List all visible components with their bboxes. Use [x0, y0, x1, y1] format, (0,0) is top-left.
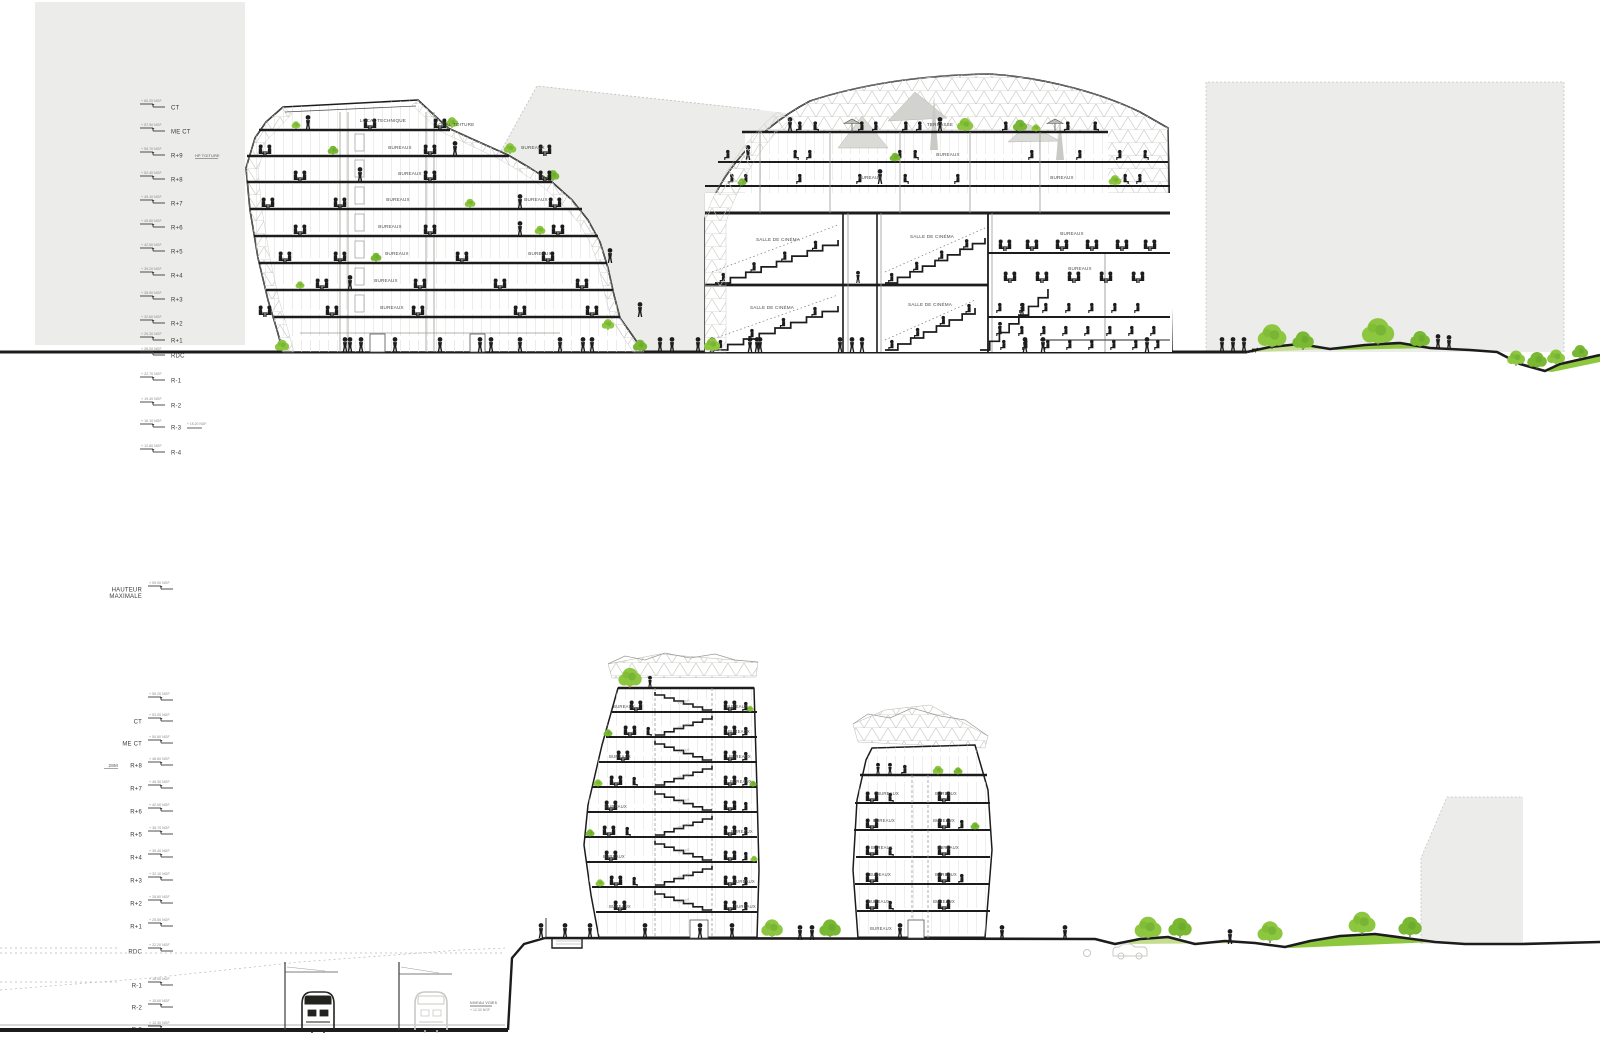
circle [278, 342, 282, 346]
circle [783, 251, 787, 255]
circle [1090, 340, 1094, 344]
circle [1063, 925, 1068, 930]
circle [750, 329, 754, 333]
circle [874, 121, 878, 125]
tower-1: PALIERPALIERPALIERPALIERPALIERPALIERPALI… [584, 653, 759, 938]
circle [262, 198, 266, 202]
path [160, 900, 163, 902]
level-marker: + 35.40 NGFR+4 [130, 849, 173, 861]
window [355, 295, 364, 312]
circle [502, 279, 506, 283]
label-text: + 16.10 NGF [141, 419, 162, 423]
room-label: BUREAUX [528, 251, 552, 256]
circle [334, 306, 338, 310]
circle [539, 171, 543, 175]
tree-icon [1398, 917, 1421, 937]
level-label: R+8 [171, 177, 183, 183]
room-label: BUREAUX [380, 305, 404, 310]
circle [518, 337, 523, 342]
train-icon [302, 992, 334, 1033]
level-label: R+3 [171, 297, 183, 303]
path [160, 762, 163, 764]
path [552, 938, 582, 948]
circle [1034, 240, 1038, 244]
circle [624, 726, 628, 730]
circle [1030, 150, 1034, 154]
circle [960, 874, 964, 878]
label-text: + 28.80 NGF [149, 895, 170, 899]
circle [813, 121, 817, 125]
circle [267, 306, 271, 310]
room-label: BUREAUX [728, 729, 750, 734]
circle [522, 306, 526, 310]
circle [755, 337, 760, 342]
circle [636, 342, 640, 346]
circle [358, 167, 363, 172]
circle [698, 923, 703, 928]
person-figure [563, 923, 568, 938]
level-marker: + 16.10 NGFR-3+ 15.20 NGF [140, 419, 207, 431]
path [152, 402, 155, 404]
room-label: LOCAL TECHNIQUE [360, 118, 406, 123]
circle [876, 763, 880, 767]
circle [730, 923, 735, 928]
room-label: BUREAUX [1060, 231, 1084, 236]
circle [955, 769, 958, 772]
circle [1112, 340, 1116, 344]
label-text: + 18.90 NGF [149, 977, 170, 981]
circle [658, 337, 663, 342]
circle [860, 121, 864, 125]
top-section: LOCAL TECHNIQUELOCAL TOITUREBUREAUXBUREA… [0, 2, 1600, 456]
circle [724, 826, 728, 830]
circle [294, 171, 298, 175]
level-marker: + 22.20 NGFRDC [0, 943, 173, 955]
circle [297, 283, 300, 286]
circle [1145, 337, 1150, 342]
circle [605, 731, 608, 734]
circle [967, 304, 971, 308]
circle [1116, 240, 1120, 244]
circle [1173, 922, 1180, 929]
label-text: + 19.40 NGF [141, 397, 162, 401]
circle [467, 200, 470, 203]
label-text: + 45.80 NGF [141, 219, 162, 223]
path [152, 424, 155, 426]
circle [334, 198, 338, 202]
circle [632, 877, 636, 881]
circle [464, 252, 468, 256]
label-text: + 57.90 NGF [141, 123, 162, 127]
circle [915, 262, 919, 266]
circle [823, 923, 829, 929]
circle [424, 171, 428, 175]
circle [918, 121, 922, 125]
path [160, 1004, 163, 1006]
circle [724, 901, 728, 905]
person-figure [588, 923, 593, 938]
line [287, 967, 325, 971]
circle [707, 341, 712, 346]
circle [1403, 921, 1410, 928]
circle [348, 337, 353, 342]
circle [306, 115, 311, 120]
circle [316, 279, 320, 283]
label-text: + 59.00 NGF [149, 581, 170, 585]
circle [588, 923, 593, 928]
circle [393, 337, 398, 342]
room-label: BUREAUX [873, 818, 895, 823]
circle [560, 225, 564, 229]
circle [557, 198, 561, 202]
window [355, 268, 364, 285]
circle [563, 923, 568, 928]
circle [1067, 303, 1071, 307]
circle [904, 121, 908, 125]
room-label: BUREAUX [935, 791, 957, 796]
circle [1064, 240, 1068, 244]
circle [1156, 340, 1160, 344]
level-label: R+8 [130, 763, 142, 769]
circle [456, 252, 460, 256]
level-label: R+1 [130, 924, 142, 930]
circle [1020, 326, 1024, 330]
circle [576, 279, 580, 283]
circle [1263, 329, 1271, 337]
circle [1094, 240, 1098, 244]
circle [618, 876, 622, 880]
circle [412, 306, 416, 310]
path [160, 1026, 163, 1028]
level-label: ME CT [122, 741, 142, 747]
label-text: + 38.70 NGF [149, 826, 170, 830]
level-label: R+6 [130, 809, 142, 815]
label-text: + 45.30 NGF [149, 780, 170, 784]
circle [724, 851, 728, 855]
room-label: BUREAUX [1050, 175, 1074, 180]
background-block [1421, 797, 1523, 944]
label-text: + 53.00 NGF [149, 713, 170, 717]
circle [860, 337, 865, 342]
level-label: R+5 [171, 249, 183, 255]
circle [584, 279, 588, 283]
label-text: + 55.20 NGF [149, 692, 170, 696]
circle [539, 923, 544, 928]
circle [632, 726, 636, 730]
level-label: R+4 [171, 273, 183, 279]
label-text: + 32.60 NGF [141, 315, 162, 319]
tree-icon [1168, 918, 1191, 938]
circle [726, 150, 730, 154]
circle [1123, 174, 1127, 178]
label-text: + 15.60 NGF [149, 999, 170, 1003]
label-text: + 25.50 NGF [149, 918, 170, 922]
circle [744, 852, 748, 856]
level-marker: + 48.60 NGFR+828M [104, 757, 173, 769]
level-marker: + 32.10 NGFR+3 [130, 872, 173, 884]
circle [618, 776, 622, 780]
circle [1000, 925, 1005, 930]
circle [813, 307, 817, 311]
circle [610, 776, 614, 780]
circle [1086, 240, 1090, 244]
circle [489, 337, 494, 342]
path [160, 831, 163, 833]
level-label: R+3 [130, 878, 142, 884]
circle [424, 225, 428, 229]
circle [798, 174, 802, 178]
shape [308, 1010, 316, 1016]
circle [302, 171, 306, 175]
circle [552, 225, 556, 229]
mesh-cap [853, 705, 988, 748]
circle [850, 337, 855, 342]
label-text: + 22.20 NGF [149, 943, 170, 947]
circle [782, 318, 786, 322]
label-text: + 29.30 NGF [141, 332, 162, 336]
circle [916, 328, 920, 332]
label-text: + 26.00 NGF [141, 347, 162, 351]
circle [724, 876, 728, 880]
door [370, 334, 385, 352]
shape [421, 1010, 429, 1016]
room-label: SALLE DE CINÉMA [756, 236, 801, 242]
circle [965, 239, 969, 243]
tree-icon [819, 919, 840, 938]
circle [748, 707, 750, 709]
circle [1016, 122, 1020, 126]
circle [724, 751, 728, 755]
label-text: + 32.10 NGF [149, 872, 170, 876]
label-text: NIVEAU VOIES [470, 1001, 498, 1005]
label-text: + 42.50 NGF [141, 243, 162, 247]
circle [999, 240, 1003, 244]
circle [1414, 334, 1420, 340]
circle [890, 273, 894, 277]
path [160, 808, 163, 810]
person-figure [648, 676, 652, 688]
circle [1111, 177, 1115, 181]
path [563, 928, 568, 938]
circle [270, 198, 274, 202]
circle [956, 174, 960, 178]
shape [433, 1010, 441, 1016]
level-label: R+7 [171, 201, 183, 207]
room-label: BUREAUX [605, 804, 627, 809]
level-label: R-2 [132, 1005, 143, 1011]
room-label: BUREAUX [730, 779, 752, 784]
circle [1044, 272, 1048, 276]
room-label: BUREAUX [869, 872, 891, 877]
circle [732, 801, 736, 805]
rail-cutting: NIVEAU VOIES+ 12.30 NGF [0, 918, 592, 1033]
circle [478, 337, 483, 342]
circle [506, 145, 510, 149]
circle [1068, 272, 1072, 276]
circle [432, 145, 436, 149]
circle [942, 316, 946, 320]
shape [320, 1010, 328, 1016]
circle [1550, 352, 1555, 357]
circle [587, 831, 590, 834]
level-label: R+7 [130, 786, 142, 792]
circle [960, 121, 965, 126]
circle [1220, 337, 1225, 342]
circle [1046, 340, 1050, 344]
circle [594, 306, 598, 310]
door [470, 334, 485, 352]
level-marker: + 50.80 NGFME CT [122, 735, 173, 747]
level-marker: + 53.00 NGFCT [134, 713, 173, 725]
circle [547, 171, 551, 175]
level-marker: + 38.70 NGFR+5 [130, 826, 173, 838]
desk-group [259, 306, 272, 318]
path [160, 718, 163, 720]
circle [1056, 240, 1060, 244]
circle [610, 876, 614, 880]
room-label: BUREAUX [936, 152, 960, 157]
circle [890, 340, 894, 344]
circle [866, 792, 870, 796]
level-label: CT [171, 105, 180, 111]
circle [1023, 337, 1028, 342]
room-label: BUREAUX [731, 829, 753, 834]
path [160, 923, 163, 925]
label-text: + 52.40 NGF [141, 171, 162, 175]
circle [432, 225, 436, 229]
circle [632, 777, 636, 781]
circle [424, 145, 428, 149]
circle [1354, 916, 1362, 924]
tree-icon [1527, 352, 1547, 369]
tower-2: BUREAUXBUREAUXBUREAUXBUREAUXBUREAUXBUREA… [853, 705, 992, 938]
level-markers: + 59.00 NGFHAUTEURMAXIMALE+ 55.20 NGF+ 5… [0, 581, 173, 1033]
room-label: SALLE DE CINÉMA [750, 304, 795, 310]
background-block [35, 2, 245, 345]
room-label: BUREAUX [378, 224, 402, 229]
circle [595, 781, 598, 784]
circle [494, 279, 498, 283]
circle [748, 337, 753, 342]
circle [898, 923, 903, 928]
circle [324, 279, 328, 283]
circle [326, 306, 330, 310]
room-label: BUREAUX [733, 879, 755, 884]
circle [1130, 326, 1134, 330]
drawing-canvas: LOCAL TECHNIQUELOCAL TOITUREBUREAUXBUREA… [0, 0, 1600, 1043]
room-label: SALLE DE CINÉMA [910, 233, 955, 239]
label-text: + 12.30 NGF [470, 1008, 490, 1012]
circle [1068, 340, 1072, 344]
level-label: R-3 [171, 425, 182, 431]
level-note: 28M [108, 763, 118, 768]
label-text: + 49.10 NGF [141, 195, 162, 199]
path [160, 785, 163, 787]
circle [638, 302, 643, 307]
circle [903, 765, 907, 769]
path [539, 928, 544, 938]
room-label: BUREAUX [609, 904, 631, 909]
room-label: SALLE DE CINÉMA [908, 301, 953, 307]
level-marker: + 42.00 NGFR+6 [130, 803, 173, 815]
circle [913, 150, 917, 154]
circle [1152, 326, 1156, 330]
circle [1296, 335, 1302, 341]
circle [1152, 240, 1156, 244]
room-label: BUREAUX [871, 845, 893, 850]
circle [1531, 355, 1537, 361]
level-label: R-2 [171, 403, 182, 409]
level-note: + 15.20 NGF [187, 422, 207, 426]
circle [1262, 925, 1269, 932]
circle [878, 169, 883, 174]
retaining-wall [508, 938, 545, 1030]
circle [597, 881, 600, 884]
circle [765, 923, 771, 929]
level-label: HAUTEUR [112, 587, 143, 593]
circle [518, 221, 523, 226]
circle [1004, 272, 1008, 276]
circle [1021, 303, 1025, 307]
room-label: BUREAUX [726, 704, 748, 709]
circle [1100, 272, 1104, 276]
level-marker: + 45.30 NGFR+7 [130, 780, 173, 792]
level-label: R+5 [130, 832, 142, 838]
door [908, 920, 924, 938]
circle [259, 306, 263, 310]
circle [302, 225, 306, 229]
circle [334, 252, 338, 256]
circle [1242, 337, 1247, 342]
circle [810, 925, 815, 930]
level-label: R-1 [171, 378, 182, 384]
circle [348, 275, 353, 280]
path [418, 996, 444, 1004]
circle [518, 194, 523, 199]
tree-icon [1349, 912, 1376, 935]
circle [724, 726, 728, 730]
label-text: + 55.70 NGF [141, 147, 162, 151]
level-marker: + 25.50 NGFR+1 [130, 918, 173, 930]
circle [1044, 303, 1048, 307]
path [160, 877, 163, 879]
path [152, 449, 155, 451]
circle [1140, 921, 1148, 929]
circle [1078, 150, 1082, 154]
circle [558, 337, 563, 342]
level-label: R+2 [171, 321, 183, 327]
circle [856, 271, 860, 275]
circle [1113, 303, 1117, 307]
circle [1368, 323, 1377, 332]
label-text: + 48.60 NGF [149, 757, 170, 761]
level-marker: + 28.80 NGFR+2 [130, 895, 173, 907]
path [160, 586, 163, 588]
circle [1575, 348, 1580, 353]
level-label: MAXIMALE [109, 594, 142, 600]
circle [866, 819, 870, 823]
window [355, 187, 364, 204]
circle [646, 727, 650, 731]
room-label: BUREAUX [613, 704, 635, 709]
circle [373, 254, 376, 257]
level-marker: + 59.00 NGFHAUTEURMAXIMALE [109, 581, 173, 600]
circle [422, 279, 426, 283]
circle [935, 767, 938, 770]
circle [1144, 240, 1148, 244]
circle [259, 145, 263, 149]
section-drawing: LOCAL TECHNIQUELOCAL TOITUREBUREAUXBUREA… [0, 0, 1600, 1043]
